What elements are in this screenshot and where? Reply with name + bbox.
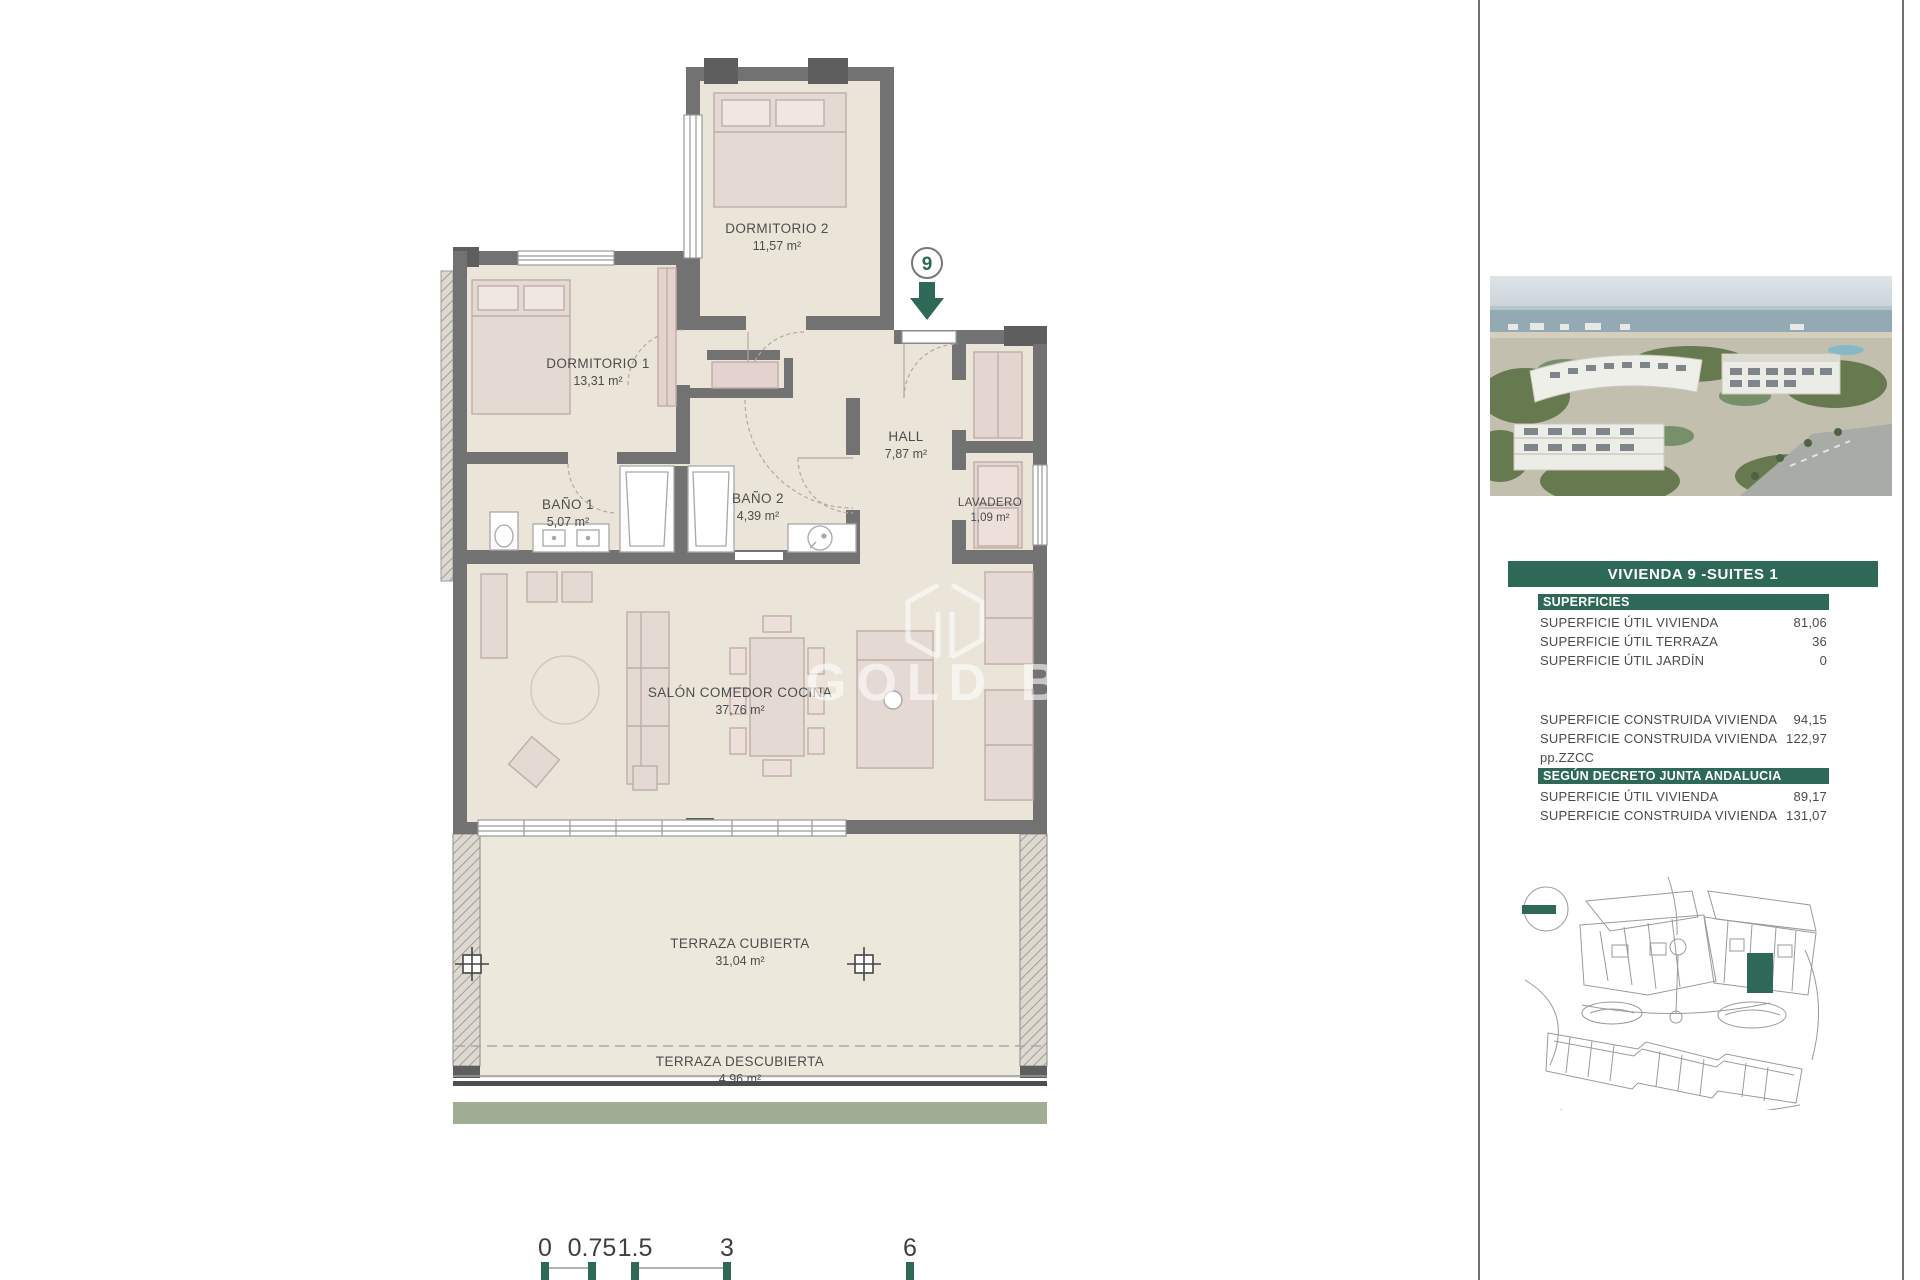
room-label-dormitorio-1: DORMITORIO 1 <box>546 356 650 371</box>
room-area-salon: 37,76 m² <box>715 703 764 717</box>
table-row: SUPERFICIE ÚTIL JARDÍN 0 <box>1538 651 1829 670</box>
scale-bar: 0 0.75 1.5 3 6 <box>538 1234 917 1280</box>
table-row: SUPERFICIE ÚTIL VIVIENDA 89,17 <box>1538 787 1829 806</box>
armchair-1 <box>527 572 557 602</box>
room-area-terraza-descubierta: 4,96 m² <box>719 1072 761 1086</box>
surfaces-table: SUPERFICIES SUPERFICIE ÚTIL VIVIENDA 81,… <box>1538 594 1829 825</box>
table-row: SUPERFICIE CONSTRUIDA VIVIENDA 94,15 <box>1538 710 1829 729</box>
scale-label-075: 0.75 <box>568 1234 617 1262</box>
tv-unit <box>481 574 507 658</box>
room-label-bano-2: BAÑO 2 <box>732 491 784 506</box>
entry-arrow-icon <box>910 282 944 320</box>
aerial-photo <box>1490 276 1892 496</box>
page-edge-line <box>1902 0 1904 1280</box>
scale-label-6: 6 <box>903 1234 917 1262</box>
section-header-superficies: SUPERFICIES <box>1538 594 1829 610</box>
bed-dormitorio-1 <box>472 280 570 414</box>
room-area-hall: 7,87 m² <box>885 447 927 461</box>
room-area-lavadero: 1,09 m² <box>971 512 1010 524</box>
room-label-terraza-descubierta: TERRAZA DESCUBIERTA <box>656 1054 824 1069</box>
side-table <box>633 766 657 790</box>
wardrobe-dormitorio-1 <box>658 268 676 406</box>
room-label-dormitorio-2: DORMITORIO 2 <box>725 221 829 236</box>
table-row: SUPERFICIE CONSTRUIDA VIVIENDA pp.ZZCC 1… <box>1538 729 1829 748</box>
watermark-text: GOLD BRIC <box>806 654 1188 712</box>
armchair-2 <box>562 572 592 602</box>
page-divider-line <box>1478 0 1480 1280</box>
room-area-terraza-cubierta: 31,04 m² <box>715 954 764 968</box>
table-row: SUPERFICIE ÚTIL VIVIENDA 81,06 <box>1538 613 1829 632</box>
room-area-dormitorio-2: 11,57 m² <box>753 239 801 253</box>
unit-entry-marker: 9 <box>910 248 944 320</box>
scale-label-0: 0 <box>538 1234 552 1262</box>
room-area-bano-1: 5,07 m² <box>547 515 589 529</box>
table-row: SUPERFICIE ÚTIL TERRAZA 36 <box>1538 632 1829 651</box>
room-label-hall: HALL <box>888 429 923 444</box>
scale-label-3: 3 <box>720 1234 734 1262</box>
closet-vestibule <box>712 362 778 388</box>
unit-title: VIVIENDA 9 -SUITES 1 <box>1608 566 1779 583</box>
bed-dormitorio-2 <box>714 93 846 207</box>
room-area-bano-2: 4,39 m² <box>737 509 779 523</box>
floorplan-sheet: DORMITORIO 2 11,57 m² DORMITORIO 1 13,31… <box>0 0 1920 1280</box>
site-key-bar <box>1522 905 1556 914</box>
highlighted-unit <box>1747 953 1773 993</box>
room-area-dormitorio-1: 13,31 m² <box>573 374 622 388</box>
site-plan <box>1520 865 1830 1110</box>
room-label-terraza-cubierta: TERRAZA CUBIERTA <box>670 936 809 951</box>
scale-label-15: 1.5 <box>618 1234 653 1262</box>
unit-number: 9 <box>922 254 933 275</box>
garden-strip <box>453 1102 1047 1124</box>
section-header-decreto: SEGÚN DECRETO JUNTA ANDALUCIA <box>1538 768 1829 784</box>
room-label-salon: SALÓN COMEDOR COCINA <box>648 685 832 700</box>
closet-hall <box>974 352 1022 438</box>
room-label-bano-1: BAÑO 1 <box>542 497 594 512</box>
room-label-lavadero: LAVADERO <box>958 497 1022 509</box>
unit-title-banner: VIVIENDA 9 -SUITES 1 <box>1508 561 1878 587</box>
table-row: SUPERFICIE CONSTRUIDA VIVIENDA 131,07 <box>1538 806 1829 825</box>
